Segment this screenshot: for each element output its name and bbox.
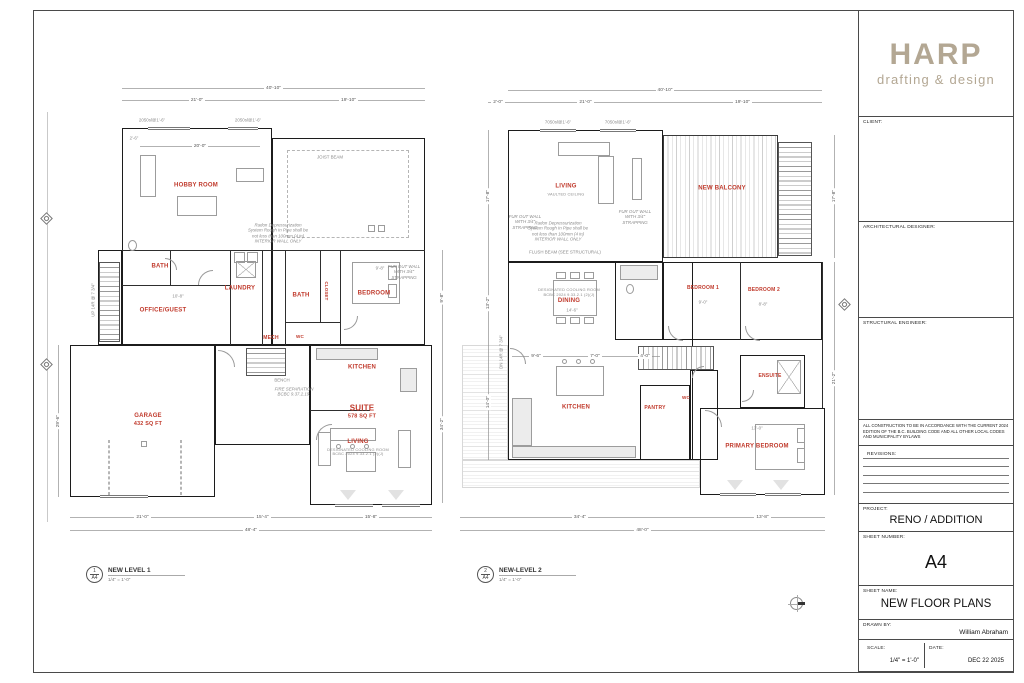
dimension: 21'-0": [508, 98, 663, 106]
project-label: PROJECT:: [863, 507, 1009, 512]
sheet-number: A4: [863, 552, 1009, 573]
floor-plan-level-2: LIVINGVAULTED CEILING NEW BALCONY DESIGN…: [455, 0, 855, 683]
fur-out-note: FUR OUT WALL WITH 3/4" STRAPPING: [505, 214, 545, 230]
room-label: PRIMARY BEDROOM: [725, 443, 788, 451]
partition: [230, 250, 231, 345]
window-tag: 7050sl@1'-6": [605, 119, 631, 124]
client-label: CLIENT:: [863, 120, 1009, 125]
revision-row: [863, 492, 1009, 500]
junction-box: [368, 225, 375, 232]
exterior-stairs: [778, 142, 812, 256]
drawn-by-value: William Abraham: [959, 629, 1008, 636]
window: [335, 504, 373, 507]
furniture-sofa: [140, 155, 156, 197]
dimension: 9'-8": [438, 250, 446, 345]
kitchen-counter: [316, 348, 378, 360]
furniture-sofa: [177, 196, 217, 216]
dimension: 14'-0": [484, 345, 492, 460]
dimension: 17'-8": [830, 135, 838, 258]
partition: [822, 262, 823, 408]
plan-caption: 1A4 NEW LEVEL 11/4" = 1'-0": [86, 566, 185, 583]
joist-note: JOIST BEAM: [317, 154, 343, 159]
room-label: KITCHEN: [348, 364, 376, 372]
plan-title: NEW-LEVEL 2: [499, 567, 576, 576]
architectural-designer-section: ARCHITECTURAL DESIGNER:: [859, 222, 1013, 318]
company-logo: HARP drafting & design: [859, 11, 1013, 117]
scale-value: 1/4" = 1'-0": [890, 658, 919, 664]
partition: [285, 322, 341, 323]
window-swing-icon: [340, 490, 356, 500]
dimension: 17'-8": [484, 130, 492, 262]
plan-scale: 1/4" = 1'-0": [108, 576, 185, 582]
dimension: 48'-0": [460, 526, 825, 534]
kitchen-appliance: [400, 368, 417, 392]
room-label: OFFICE/GUEST: [140, 307, 187, 315]
dimension: 34'-2": [438, 345, 446, 503]
bed-pillow: [797, 428, 805, 443]
room-label: CLOSET: [323, 281, 329, 300]
scale-label: SCALE:: [867, 646, 920, 651]
room-label: NEW BALCONY: [698, 185, 746, 193]
partition: [340, 250, 341, 345]
logo-tagline: drafting & design: [877, 72, 995, 87]
window: [540, 129, 576, 132]
room-label: BEDROOM: [358, 290, 391, 298]
room-label: SUITE578 SQ FT: [348, 404, 376, 421]
dimension: 40'-10": [508, 86, 822, 94]
section-marker-icon: [40, 358, 53, 371]
window: [600, 129, 636, 132]
revisions-section: REVISIONS:: [859, 446, 1013, 504]
window-swing-icon: [388, 490, 404, 500]
sheet-number-label: SHEET NUMBER:: [863, 535, 1009, 540]
detail-reference-icon: 1A4: [86, 566, 103, 583]
grid-line: [47, 112, 48, 522]
date-cell: DATE: DEC 22 2025: [925, 643, 1009, 668]
dimension: 48'-4": [70, 526, 432, 534]
dimension: 2'-0": [488, 98, 508, 106]
furniture-sofa: [598, 156, 614, 204]
dining-chair: [570, 317, 580, 324]
sheet-name-section: SHEET NAME: NEW FLOOR PLANS: [859, 586, 1013, 620]
architectural-designer-label: ARCHITECTURAL DESIGNER:: [863, 225, 1009, 230]
target-symbol-icon: [790, 597, 803, 610]
partition: [320, 250, 321, 322]
fire-separation-note: FIRE SEPARATION BCBC 9.37.2.19.: [274, 387, 314, 398]
structural-engineer-label: STRUCTURAL ENGINEER:: [863, 321, 1009, 326]
date-value: DEC 22 2025: [968, 658, 1004, 664]
dimension: 21'-0": [70, 513, 215, 521]
client-section: CLIENT:: [859, 117, 1013, 222]
dimension: 13'-8": [700, 513, 825, 521]
dining-chair: [556, 317, 566, 324]
room-label: HOBBY ROOM: [174, 182, 218, 190]
window-tag: 2050sl@1'-6": [139, 117, 165, 122]
room-label: LIVINGDESIGNATED COOLING ROOM BCBC 2024 …: [326, 439, 390, 457]
garage-stall-line: [108, 440, 110, 495]
dimension: 21'-2": [830, 262, 838, 495]
dimension: 21'-0": [122, 96, 272, 104]
dimension: 14'-6": [566, 307, 577, 312]
drawn-by-section: DRAWN BY: William Abraham: [859, 620, 1013, 640]
dimension: 7'-0": [560, 352, 630, 360]
stair-note: UP 14R @ 7 3/4": [90, 283, 95, 317]
detail-reference-icon: 2A4: [477, 566, 494, 583]
project-name: RENO / ADDITION: [863, 514, 1009, 526]
room-label: BATH: [151, 263, 168, 271]
fur-out-note: FUR OUT WALL WITH 3/4" STRAPPING: [382, 264, 426, 280]
dimension: 10'-8": [172, 293, 183, 298]
radon-note: Radon Depressurization System Rough In P…: [247, 222, 309, 243]
room-label: MECH: [263, 335, 279, 341]
dimension: 40'-10": [122, 84, 425, 92]
room-label: PANTRY: [644, 405, 665, 411]
bench-note: BENCH: [274, 377, 289, 382]
room-label: WC: [682, 395, 690, 401]
revision-row: [863, 483, 1009, 491]
date-label: DATE:: [929, 646, 1005, 651]
room-label: BATH: [292, 292, 309, 300]
revision-row: [863, 466, 1009, 474]
room-label: DESIGNATED COOLING ROOM BCBC 2024 9.33.2…: [537, 287, 601, 305]
flush-beam-note: FLUSH BEAM (SEE STRUCTURAL): [529, 249, 601, 254]
dimension: 29'-6": [54, 345, 62, 497]
toilet: [128, 240, 137, 251]
room-label: ENSUITE: [758, 373, 781, 379]
dimension: 15'-4": [215, 513, 310, 521]
furniture-sofa: [558, 142, 610, 156]
stair-note: DN 14R @ 7 3/4": [498, 335, 503, 369]
dimension: 19'-10": [272, 96, 425, 104]
partition: [122, 285, 230, 286]
project-section: PROJECT: RENO / ADDITION: [859, 504, 1013, 532]
balcony-hatch: [663, 135, 778, 258]
window: [382, 504, 420, 507]
furniture-sofa: [398, 430, 411, 468]
partition: [740, 262, 741, 340]
code-note: ALL CONSTRUCTION TO BE IN ACCORDANCE WIT…: [863, 423, 1009, 440]
logo-wordmark: HARP: [889, 40, 982, 70]
section-marker-icon: [40, 212, 53, 225]
deck-hatch: [462, 460, 700, 488]
title-block: HARP drafting & design CLIENT: ARCHITECT…: [858, 10, 1014, 673]
partition: [285, 250, 286, 345]
code-note-section: ALL CONSTRUCTION TO BE IN ACCORDANCE WIT…: [859, 420, 1013, 446]
bed-pillow: [797, 448, 805, 463]
room-label: GARAGE432 SQ FT: [134, 413, 162, 427]
plan-title: NEW LEVEL 1: [108, 567, 185, 576]
dimension: 13'-2": [484, 262, 492, 345]
dimension: 2'-6": [130, 135, 139, 140]
dimension: 9'-0": [699, 299, 708, 304]
partition: [122, 250, 425, 251]
scale-cell: SCALE: 1/4" = 1'-0": [863, 643, 925, 668]
window-tag: 2050sl@1'-6": [235, 117, 261, 122]
dimension: 13'-0": [751, 425, 762, 430]
window: [720, 493, 756, 496]
fur-out-note: FUR OUT WALL WITH 3/4" STRAPPING: [613, 209, 657, 225]
plan-caption: 2A4 NEW-LEVEL 21/4" = 1'-0": [477, 566, 576, 583]
toilet: [626, 284, 634, 294]
garage-post: [141, 441, 147, 447]
window-tag: 7050sl@1'-6": [545, 119, 571, 124]
window-swing-icon: [727, 480, 743, 490]
room-label: BEDROOM 2: [748, 287, 780, 293]
bathtub: [620, 265, 658, 280]
scale-date-section: SCALE: 1/4" = 1'-0" DATE: DEC 22 2025: [859, 640, 1013, 672]
dining-chair: [570, 272, 580, 279]
dimension: 15'-8": [310, 513, 432, 521]
dimension: 4'-0": [630, 352, 660, 360]
furniture-console: [632, 158, 642, 200]
room-label: LIVINGVAULTED CEILING: [534, 183, 598, 196]
room-label: KITCHEN: [562, 404, 590, 412]
room-label: LAUNDRY: [225, 285, 256, 293]
window: [765, 493, 801, 496]
dimension: 34'-4": [460, 513, 700, 521]
partition: [262, 250, 263, 345]
sheet-number-section: SHEET NUMBER: A4: [859, 532, 1013, 586]
dining-chair: [584, 317, 594, 324]
dimension: 20'-0": [140, 142, 260, 150]
window: [228, 127, 258, 130]
dining-chair: [584, 272, 594, 279]
dimension: 9'-8": [376, 265, 385, 270]
room-label: WC: [296, 334, 304, 340]
furniture-table: [236, 168, 264, 182]
mudroom-steps: [246, 348, 286, 376]
dimension: 8'-8": [759, 301, 768, 306]
structural-engineer-section: STRUCTURAL ENGINEER:: [859, 318, 1013, 420]
dining-chair: [556, 272, 566, 279]
revision-row: [863, 475, 1009, 483]
garage-stall-line: [180, 440, 182, 495]
shower: [236, 261, 256, 278]
revisions-label: REVISIONS:: [863, 449, 1009, 458]
kitchen-island: [556, 366, 604, 396]
window: [148, 127, 190, 130]
window-swing-icon: [773, 480, 789, 490]
section-marker-icon: [838, 298, 851, 311]
stairs-up: [99, 262, 120, 342]
revision-row: [863, 458, 1009, 466]
junction-box: [378, 225, 385, 232]
kitchen-counter: [512, 398, 532, 446]
room-label: BEDROOM 1: [687, 285, 719, 291]
sheet-name-label: SHEET NAME:: [863, 589, 1009, 594]
dimension: 19'-10": [663, 98, 822, 106]
floor-plan-level-1: HOBBY ROOM BATH LAUNDRY BATH BEDROOM OFF…: [0, 0, 460, 683]
drawn-by-label: DRAWN BY:: [863, 623, 1009, 628]
plan-scale: 1/4" = 1'-0": [499, 576, 576, 582]
sheet-name: NEW FLOOR PLANS: [863, 598, 1009, 610]
kitchen-counter: [512, 446, 636, 458]
dimension: 9'-6": [512, 352, 560, 360]
